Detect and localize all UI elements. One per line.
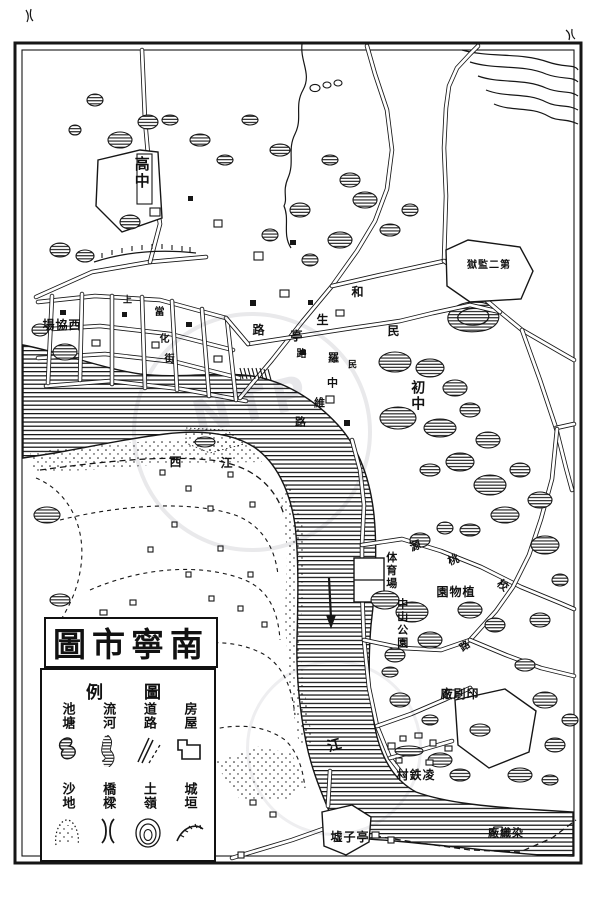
vegetation-blob	[443, 380, 467, 396]
map-label: 園物植	[436, 586, 475, 598]
building	[262, 622, 267, 627]
vegetation-blob	[460, 403, 480, 417]
building	[92, 340, 100, 346]
vegetation-blob	[379, 352, 411, 372]
road	[80, 294, 82, 380]
vegetation-blob	[437, 522, 453, 534]
vegetation-blob	[424, 419, 456, 437]
building	[214, 220, 222, 227]
track-mark	[372, 832, 379, 838]
map-label: 廠刷印	[440, 688, 479, 700]
legend-item-sand: 沙地	[48, 782, 86, 849]
vegetation-blob	[542, 775, 558, 785]
building	[100, 610, 107, 615]
map-label: 亭	[290, 330, 303, 342]
building	[214, 356, 222, 362]
vegetation-blob	[458, 602, 482, 618]
vegetation-blob	[474, 475, 506, 495]
vegetation-blob	[322, 155, 338, 165]
stream-segment	[310, 84, 320, 91]
building	[209, 596, 214, 601]
vegetation-blob	[385, 648, 405, 662]
legend-item-river: 流河	[89, 702, 127, 767]
contour-line	[462, 50, 578, 70]
map-label: 羅	[328, 352, 340, 363]
vegetation-blob	[290, 203, 310, 217]
map-label: 中	[327, 377, 339, 388]
road-casing	[444, 46, 478, 261]
map-label: 生	[316, 314, 329, 326]
vegetation-blob	[446, 453, 474, 471]
contour-line	[486, 90, 578, 110]
building	[148, 547, 153, 552]
map-label: 維	[314, 397, 326, 408]
map-title: 圖市寧南	[53, 618, 209, 666]
vegetation-blob	[53, 344, 77, 360]
vegetation-blob	[50, 243, 70, 257]
vegetation-blob	[302, 254, 318, 266]
legend-row-1: 房屋 道路 流河 池塘	[48, 702, 208, 767]
legend-header-right: 圖	[144, 678, 161, 703]
frame-line	[26, 9, 33, 22]
map-label: 和	[351, 286, 364, 298]
road	[444, 46, 478, 261]
building	[150, 208, 160, 216]
building	[254, 252, 263, 260]
building	[308, 300, 313, 305]
sand-mark	[60, 506, 278, 575]
building	[122, 312, 127, 317]
building	[208, 506, 213, 511]
vegetation-blob	[562, 714, 578, 726]
map-label: 路	[297, 350, 308, 360]
map-label: 墟子亭	[330, 831, 369, 843]
stream-segment	[323, 82, 331, 88]
vegetation-blob	[508, 768, 532, 782]
sand-symbol	[50, 815, 84, 849]
track-mark	[238, 852, 244, 858]
frame-line	[566, 29, 575, 40]
building	[344, 420, 350, 426]
vegetation-blob	[195, 437, 215, 447]
building	[238, 606, 243, 611]
vegetation-blob	[395, 746, 423, 756]
map-label: 上	[123, 296, 133, 305]
building	[280, 290, 289, 297]
track-mark	[388, 837, 394, 843]
legend-row-2: 城垣 土嶺 橋樑 沙地	[48, 782, 208, 849]
building	[270, 812, 276, 817]
legend-item-pond: 池塘	[48, 702, 86, 767]
map-label: 江	[220, 457, 233, 469]
vegetation-blob	[353, 192, 377, 208]
road	[556, 424, 574, 428]
building	[396, 758, 402, 763]
building	[415, 733, 422, 738]
vegetation-blob	[470, 724, 490, 736]
vegetation-blob	[76, 250, 94, 262]
map-label: 高中	[133, 156, 149, 190]
vegetation-blob	[217, 155, 233, 165]
building	[290, 240, 296, 245]
vegetation-blob	[485, 618, 505, 632]
bridge-symbol	[92, 815, 124, 847]
hill-contours-northeast	[462, 50, 578, 124]
vegetation-blob	[270, 144, 290, 156]
building	[218, 546, 223, 551]
vegetation-blob	[242, 115, 258, 125]
building	[326, 396, 334, 403]
vegetation-blob	[420, 464, 440, 476]
building	[160, 470, 165, 475]
contour-line	[494, 104, 578, 124]
sand-mark	[214, 746, 306, 800]
legend-item-bridge: 橋樑	[89, 782, 127, 849]
road-symbol	[132, 735, 164, 765]
road-casing	[36, 257, 206, 297]
vegetation-blob	[416, 359, 444, 377]
vegetation-blob	[190, 134, 210, 146]
building	[188, 196, 193, 201]
vegetation-blob	[380, 224, 400, 236]
vegetation-blob	[528, 492, 552, 508]
north-stream	[284, 44, 342, 248]
building	[445, 746, 452, 751]
building	[186, 486, 191, 491]
map-label: 西	[169, 456, 182, 468]
map-label: 化	[160, 335, 171, 345]
vegetation-blob	[262, 229, 278, 241]
legend-header-left: 例	[86, 678, 103, 703]
map-title-box: 圖市寧南	[44, 617, 218, 668]
vegetation-blob	[138, 115, 158, 129]
pier-line	[268, 369, 271, 380]
vegetation-blob	[340, 173, 360, 187]
vegetation-blob	[552, 574, 568, 586]
road	[240, 46, 392, 398]
vegetation-blob	[476, 432, 500, 448]
vegetation-blob	[460, 524, 480, 536]
map-label: 体育場	[385, 552, 396, 591]
vegetation-blob	[390, 693, 410, 707]
vegetation-blob	[533, 692, 557, 708]
map-label: 民	[348, 361, 358, 370]
building	[250, 800, 256, 805]
building	[186, 572, 191, 577]
map-label: 廠織染	[488, 827, 524, 838]
map-label: 獄監二第	[467, 261, 511, 271]
vegetation-blob	[108, 132, 132, 148]
legend-item-house: 房屋	[170, 702, 208, 767]
map-label: 路	[295, 416, 307, 427]
vegetation-blob	[545, 738, 565, 752]
building	[430, 740, 436, 746]
vegetation-blob	[418, 632, 442, 648]
vegetation-blob	[530, 613, 550, 627]
vegetation-blob	[450, 769, 470, 781]
map-label: 路	[252, 324, 265, 336]
map-label: 中山公園	[396, 598, 407, 650]
road	[470, 429, 557, 640]
wall-symbol	[173, 815, 205, 845]
building	[250, 300, 256, 306]
map-label: 場協西	[42, 319, 81, 331]
vegetation-blob	[402, 204, 418, 216]
vegetation-blob	[69, 125, 81, 135]
legend-header: 例 圖	[42, 678, 214, 700]
building	[336, 310, 344, 316]
map-label: 當	[155, 308, 166, 318]
building	[172, 522, 177, 527]
building	[248, 572, 253, 577]
building	[130, 600, 136, 605]
southeast-field	[455, 689, 536, 768]
building	[388, 743, 395, 749]
vegetation-blob	[491, 507, 519, 523]
road	[232, 828, 326, 858]
map-label: 村鉄凌	[396, 769, 435, 781]
vegetation-blob	[515, 659, 535, 671]
road	[36, 257, 206, 297]
map-label: 初中	[410, 380, 425, 412]
vegetation-blob	[328, 232, 352, 248]
vegetation-blob	[87, 94, 103, 106]
legend-box: 例 圖 房屋 道路 流河 池塘	[40, 668, 216, 862]
building	[152, 342, 159, 348]
house-symbol	[173, 735, 205, 765]
river-symbol	[92, 735, 124, 767]
building	[228, 472, 233, 477]
legend-item-wall: 城垣	[170, 782, 208, 849]
vegetation-blob	[382, 667, 398, 677]
building	[186, 322, 192, 327]
vegetation-blob	[531, 536, 559, 554]
vegetation-blob	[510, 463, 530, 477]
map-label: 街	[165, 355, 176, 365]
building	[60, 310, 66, 315]
vegetation-blob	[34, 507, 60, 523]
building	[426, 760, 433, 765]
legend-item-hill: 土嶺	[129, 782, 167, 849]
map-page: NTP 高中場協西獄監二第初中和民生亭路路羅民中維路上當化街西江源桃体育場園物植…	[0, 0, 600, 912]
building	[250, 502, 255, 507]
legend-item-road: 道路	[129, 702, 167, 767]
building	[400, 736, 406, 741]
vegetation-blob	[120, 215, 140, 229]
vegetation-blob	[422, 715, 438, 725]
road-casing	[240, 46, 392, 398]
road-casing	[470, 429, 557, 640]
vegetation-blob	[50, 594, 70, 606]
vegetation-blob	[162, 115, 178, 125]
stream-segment	[334, 80, 342, 86]
road	[328, 771, 330, 806]
map-label: 民	[387, 325, 400, 337]
hill-symbol	[131, 815, 165, 849]
contour-line	[478, 76, 578, 96]
pond-symbol	[51, 735, 83, 767]
